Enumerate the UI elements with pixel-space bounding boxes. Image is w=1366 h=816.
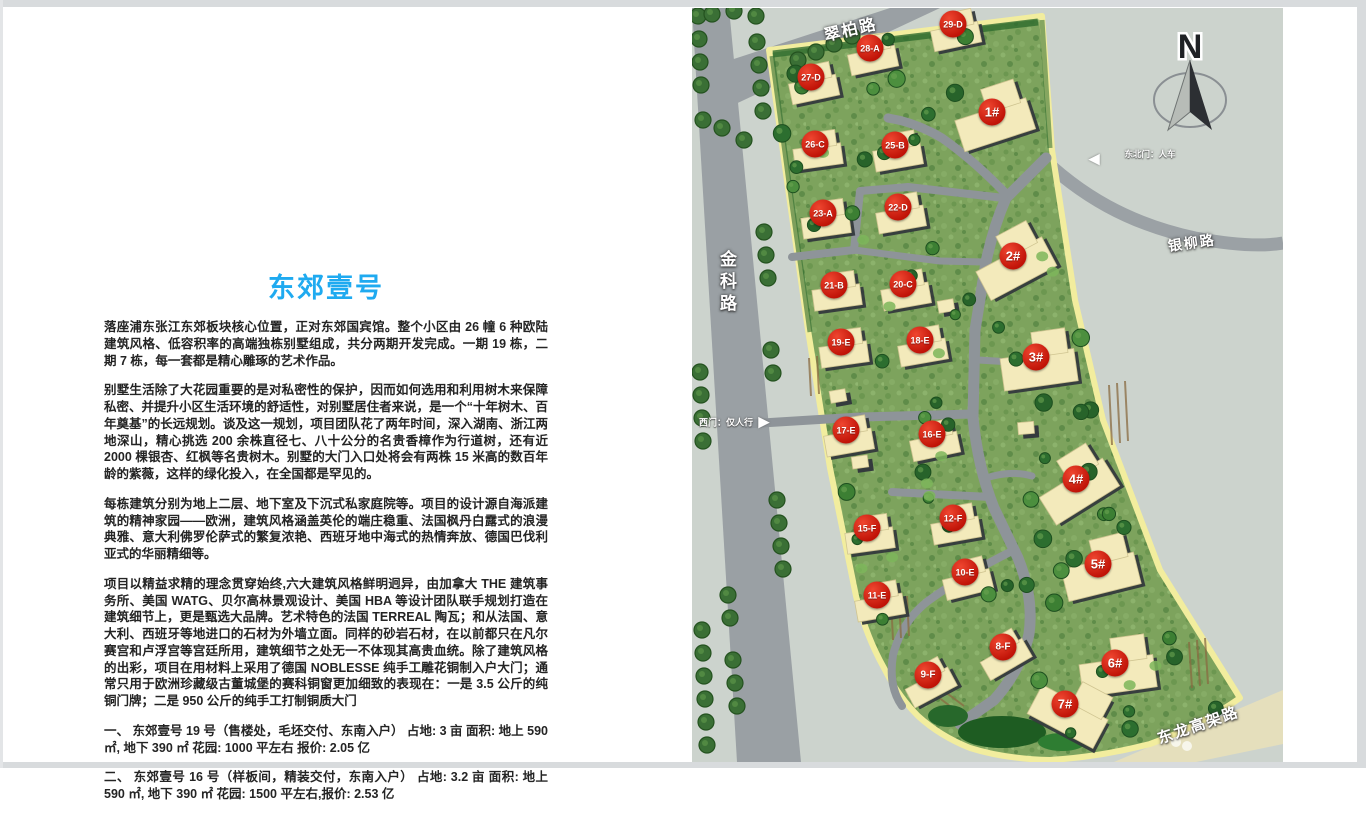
map-marker: 29-D <box>940 11 967 38</box>
map-marker: 28-A <box>857 35 884 62</box>
map-marker: 15-F <box>854 515 881 542</box>
page-title: 东郊壹号 <box>104 266 548 305</box>
map-marker: 10-E <box>952 559 979 586</box>
road-label-donglong-road: 东龙高架路 <box>1155 701 1242 749</box>
map-marker: 19-E <box>828 329 855 356</box>
map-marker: 8-F <box>990 634 1017 661</box>
list-item-villa-16: 二、 东郊壹号 16 号（样板间，精装交付，东南入户） 占地: 3.2 亩 面积… <box>104 769 548 803</box>
map-marker: 27-D <box>798 64 825 91</box>
list-item-villa-19: 一、 东郊壹号 19 号（售楼处，毛坯交付、东南入户） 占地: 3 亩 面积: … <box>104 723 548 757</box>
description-panel: 东郊壹号 落座浦东张江东郊板块核心位置，正对东郊国宾馆。整个小区由 26 幢 6… <box>104 266 548 816</box>
map-marker: 11-E <box>864 582 891 609</box>
map-marker: 4# <box>1063 466 1090 493</box>
page-border-bottom <box>0 762 1366 768</box>
map-marker: 25-B <box>882 132 909 159</box>
west-gate-arrow-icon: ▶ <box>758 415 770 430</box>
map-marker: 6# <box>1102 650 1129 677</box>
map-marker: 17-E <box>833 417 860 444</box>
paragraph-landscape: 别墅生活除了大花园重要的是对私密性的保护，因而如何选用和利用树木来保障私密、并提… <box>104 382 548 483</box>
page-border-left <box>0 0 3 768</box>
map-marker: 2# <box>1000 243 1027 270</box>
west-gate-label: 西门：仅人行 <box>699 416 753 429</box>
road-label-yinliu-road: 银柳路 <box>1167 229 1217 255</box>
map-marker: 12-F <box>940 505 967 532</box>
map-marker: 26-C <box>802 131 829 158</box>
map-marker: 23-A <box>810 200 837 227</box>
map-marker: 16-E <box>919 421 946 448</box>
map-marker: 7# <box>1052 691 1079 718</box>
site-plan-image: N 翠柏路金科路银柳路东龙高架路◀东北门：人车▶西门：仅人行1#2#3#4#5#… <box>692 8 1283 762</box>
page-border-top <box>0 0 1366 7</box>
map-marker: 5# <box>1085 551 1112 578</box>
map-overlay: 翠柏路金科路银柳路东龙高架路◀东北门：人车▶西门：仅人行1#2#3#4#5#6#… <box>692 8 1283 762</box>
page-border-right <box>1357 0 1366 768</box>
road-label-jinke-road: 金科路 <box>714 250 739 316</box>
paragraph-materials: 项目以精益求精的理念贯穿始终,六大建筑风格鲜明迥异，由加拿大 THE 建筑事务所… <box>104 576 548 710</box>
paragraph-architecture: 每栋建筑分别为地上二层、地下室及下沉式私家庭院等。项目的设计源自海派建筑的精神家… <box>104 496 548 563</box>
map-marker: 20-C <box>890 271 917 298</box>
paragraph-intro: 落座浦东张江东郊板块核心位置，正对东郊国宾馆。整个小区由 26 幢 6 种欧陆建… <box>104 319 548 369</box>
northeast-gate-arrow-icon: ◀ <box>1088 152 1100 167</box>
map-marker: 9-F <box>915 662 942 689</box>
map-marker: 3# <box>1023 344 1050 371</box>
map-marker: 22-D <box>885 194 912 221</box>
northeast-gate-label: 东北门：人车 <box>1124 148 1175 160</box>
map-marker: 18-E <box>907 327 934 354</box>
map-marker: 1# <box>979 99 1006 126</box>
map-marker: 21-B <box>821 272 848 299</box>
